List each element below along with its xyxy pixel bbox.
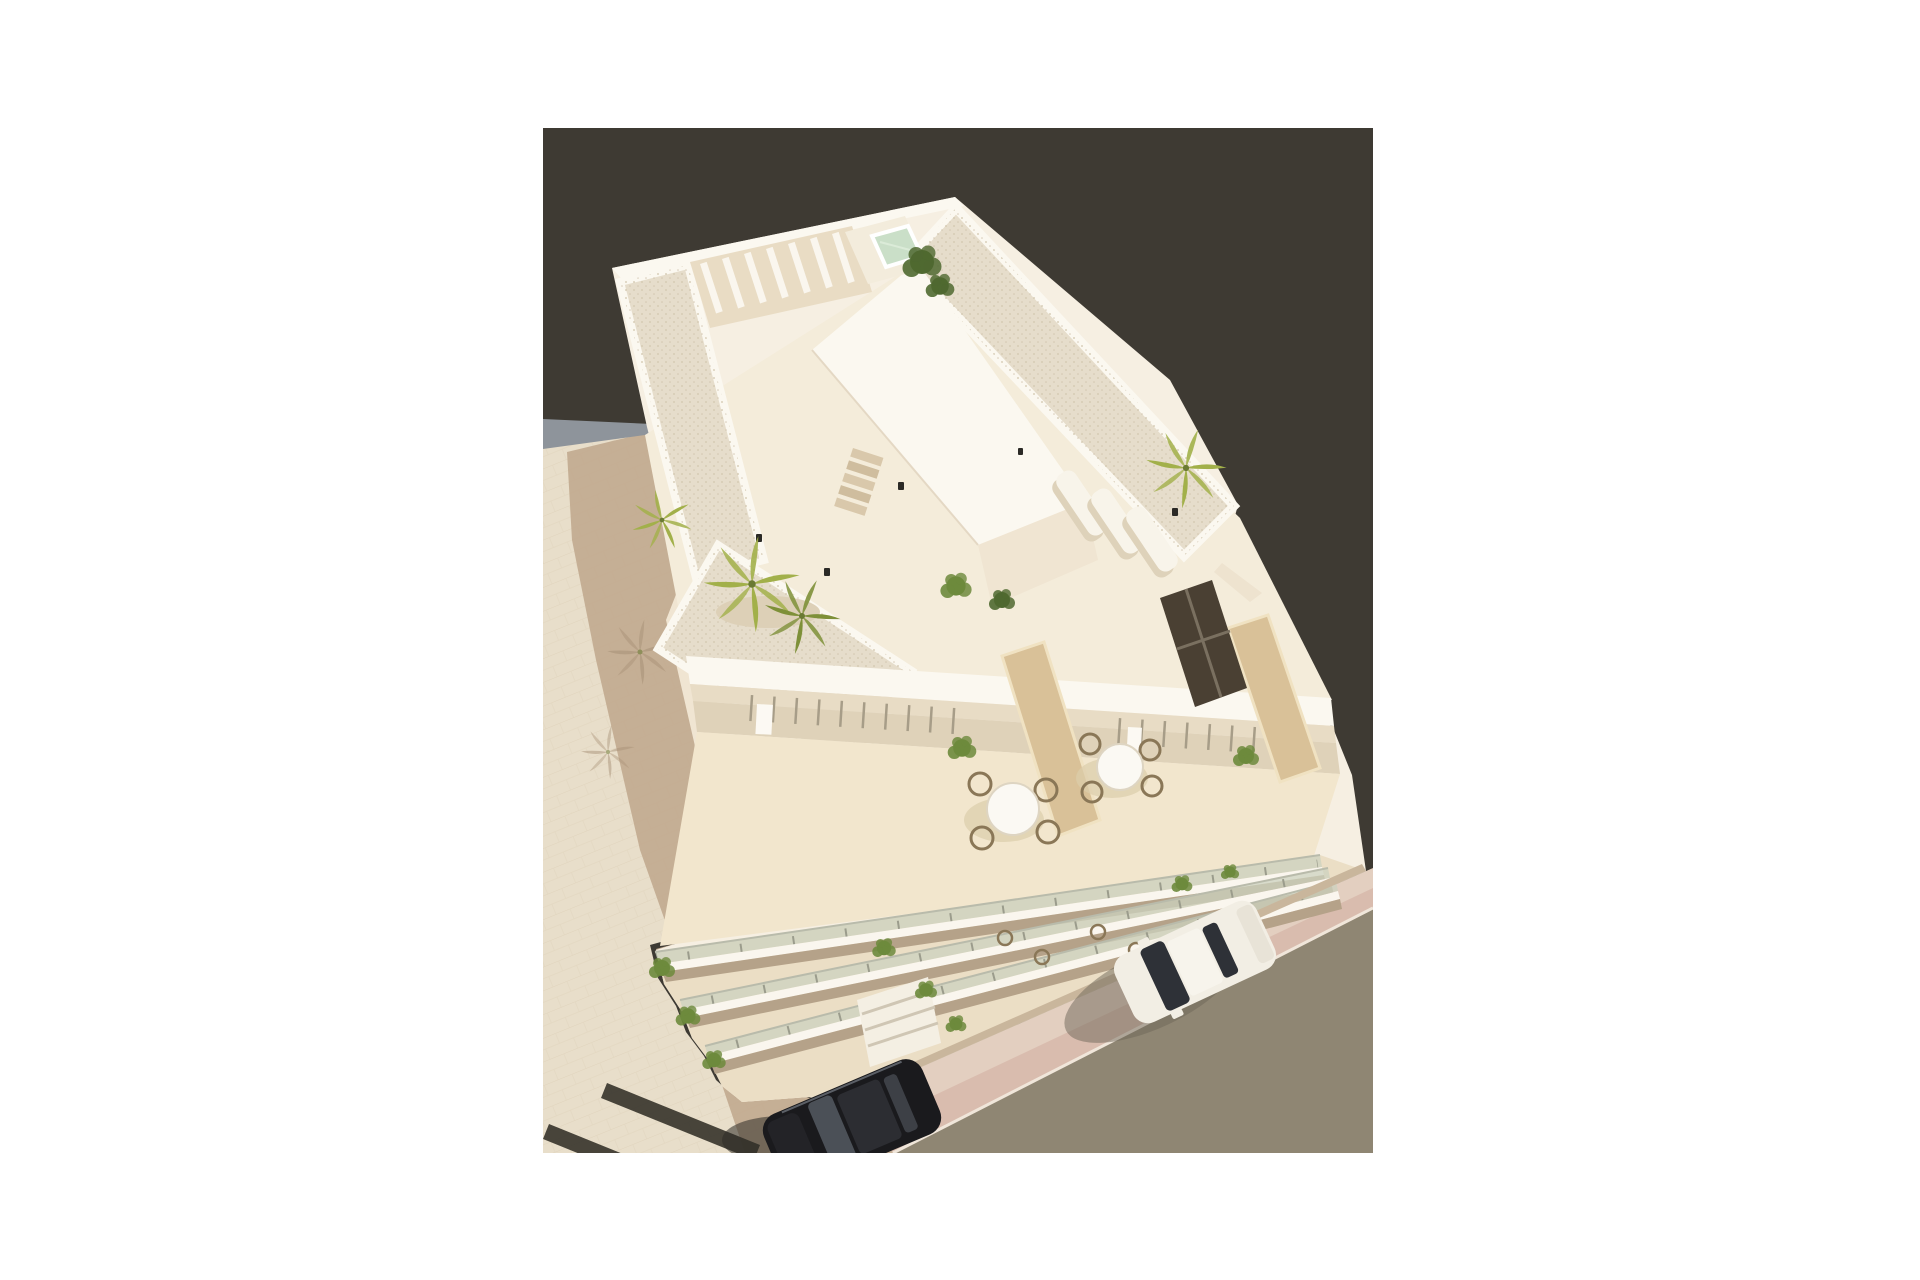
render-page — [0, 0, 1920, 1280]
palm-ground-shadow — [716, 596, 820, 628]
architectural-render — [0, 0, 1920, 1280]
curtain — [755, 704, 773, 735]
